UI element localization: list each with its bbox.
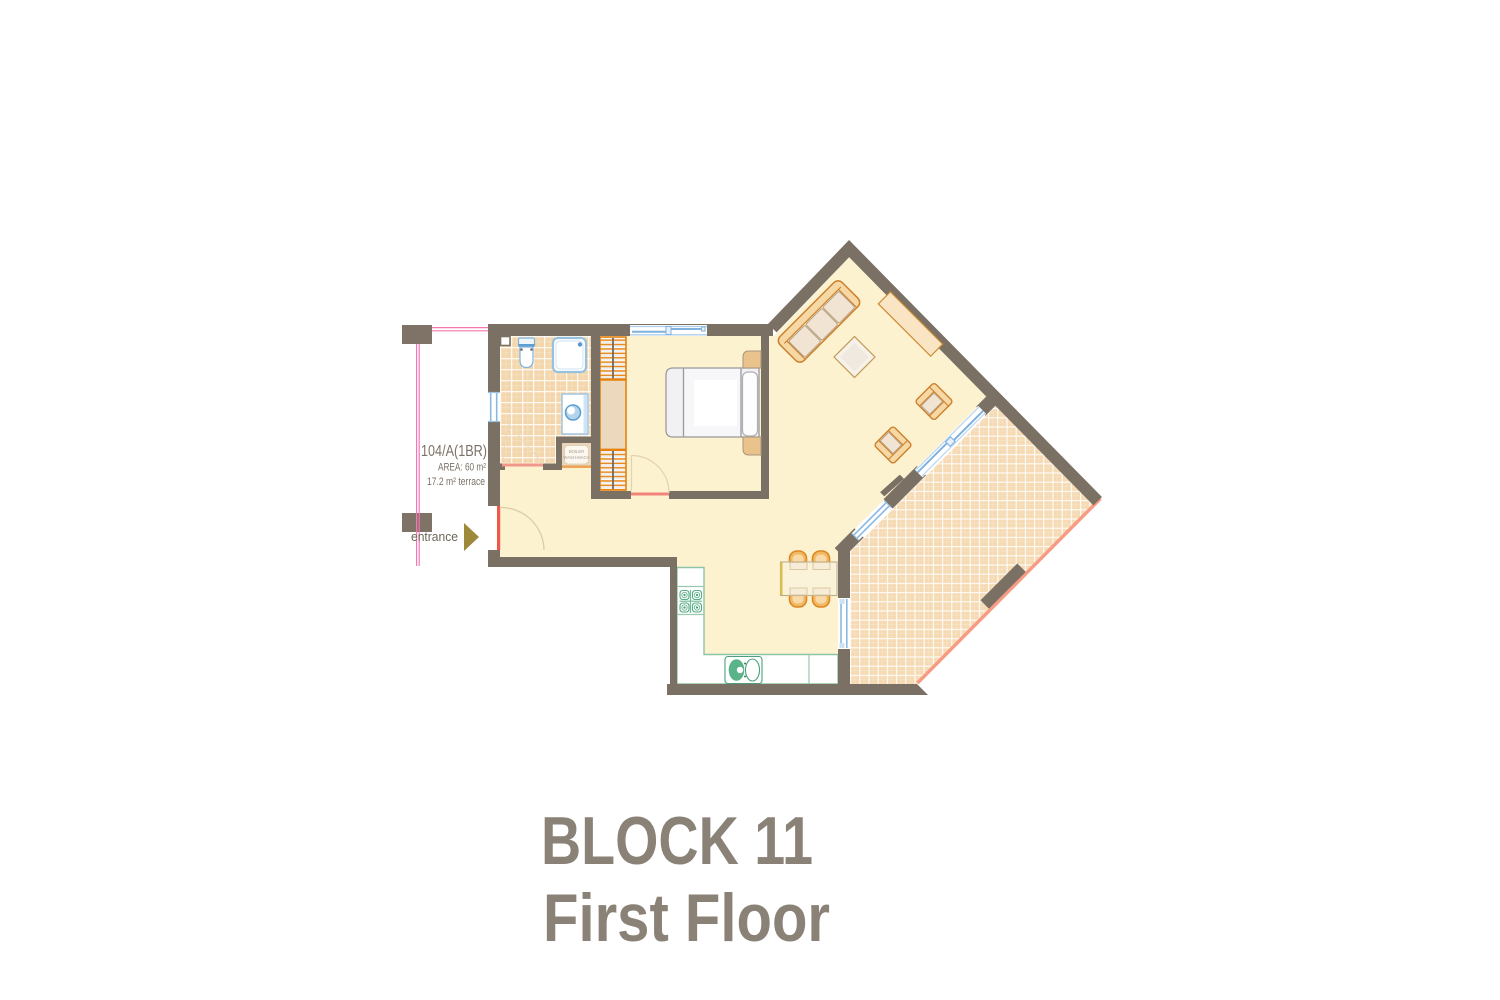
svg-text:17.2 m² terrace: 17.2 m² terrace [427,476,485,488]
svg-text:WASH-MACH: WASH-MACH [563,455,589,460]
svg-text:104/A(1BR): 104/A(1BR) [421,443,487,460]
svg-text:BOILER: BOILER [569,449,584,454]
svg-text:BLOCK 11: BLOCK 11 [541,803,813,879]
svg-text:entrance: entrance [411,529,458,544]
svg-text:AREA: 60 m²: AREA: 60 m² [438,462,486,474]
svg-text:First Floor: First Floor [543,880,830,956]
